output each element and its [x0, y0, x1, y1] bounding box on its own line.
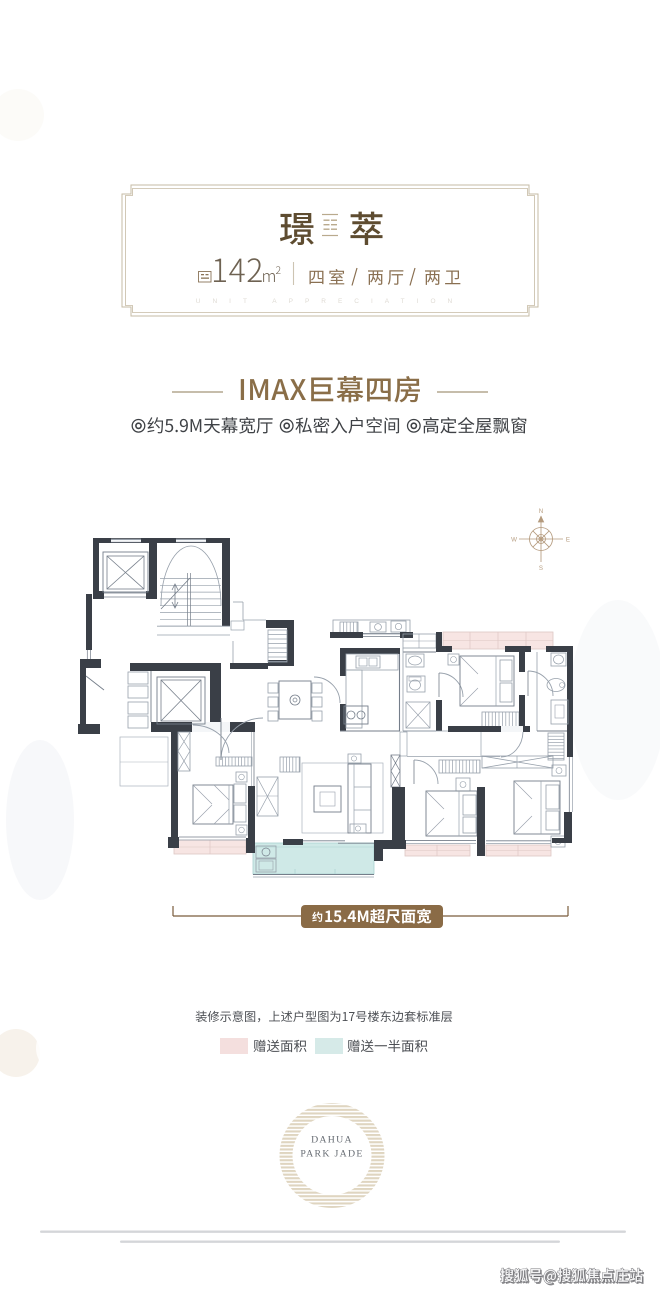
svg-text:N: N	[539, 508, 543, 515]
svg-text:E: E	[566, 537, 570, 544]
svg-text:W: W	[511, 537, 517, 544]
svg-text:PARK JADE: PARK JADE	[300, 1149, 363, 1160]
svg-text:S: S	[539, 565, 543, 572]
svg-text:DAHUA: DAHUA	[311, 1135, 353, 1146]
